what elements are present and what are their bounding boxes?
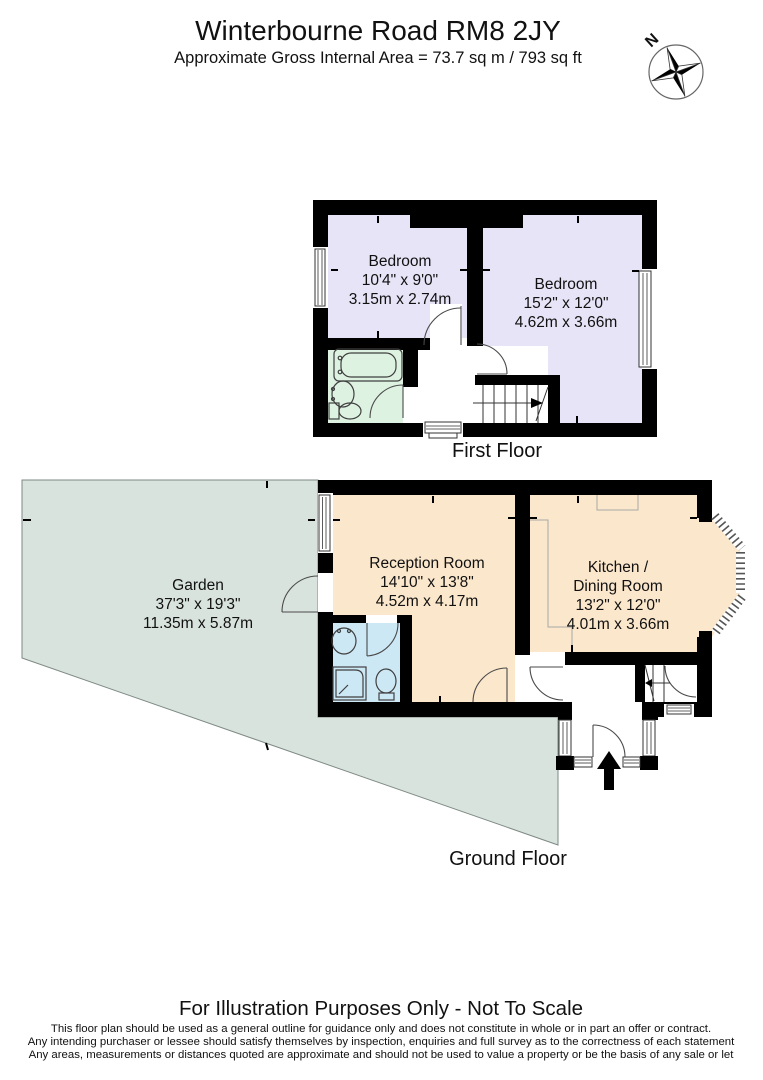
first-floor-plan: Bedroom 10'4" x 9'0" 3.15m x 2.74m Bedro… [313, 200, 657, 462]
footer-heading: For Illustration Purposes Only - Not To … [179, 997, 583, 1020]
bedroom2-name: Bedroom [535, 276, 598, 293]
compass-icon: N [642, 31, 709, 106]
bedroom1-window-icon [315, 249, 325, 306]
ground-floor-plan: Garden 37'3" x 19'3" 11.35m x 5.87m Rece… [22, 480, 742, 870]
stairs-window-icon [667, 705, 691, 714]
threshold-right-icon [623, 757, 640, 767]
threshold-left-icon [574, 757, 592, 767]
kitchen-name-line1: Kitchen / [588, 559, 649, 576]
footer-disclaimer-line3: Any areas, measurements or distances quo… [29, 1049, 735, 1061]
entrance-arrow-icon [597, 751, 621, 790]
bedroom2-dims-metric: 4.62m x 3.66m [515, 314, 618, 331]
ground-floor-stairs [645, 665, 670, 702]
kitchen-dims-imperial: 13'2" x 12'0" [575, 597, 660, 614]
kitchen-hall-door [530, 667, 563, 700]
bedroom1-door-swing-area [430, 304, 462, 346]
reception-dims-metric: 4.52m x 4.17m [376, 593, 479, 610]
header: Winterbourne Road RM8 2JY Approximate Gr… [174, 15, 709, 105]
garden-dims-metric: 11.35m x 5.87m [143, 615, 253, 632]
bedroom2-dims-imperial: 15'2" x 12'0" [523, 295, 608, 312]
page-subtitle: Approximate Gross Internal Area = 73.7 s… [174, 49, 582, 67]
page-title: Winterbourne Road RM8 2JY [195, 15, 561, 46]
landing-window-icon [425, 422, 461, 433]
floorplan-page: Winterbourne Road RM8 2JY Approximate Gr… [0, 0, 763, 1080]
porch-window-right-icon [643, 720, 655, 756]
bedroom2-window-icon [639, 271, 651, 367]
first-floor-label: First Floor [452, 440, 542, 462]
bay-opening-floor [697, 518, 712, 637]
reception-dims-imperial: 14'10" x 13'8" [380, 574, 474, 591]
bedroom1-dims-metric: 3.15m x 2.74m [349, 291, 452, 308]
garden-name: Garden [172, 577, 224, 594]
porch-window-left-icon [559, 720, 571, 756]
bedroom1-name: Bedroom [369, 253, 432, 270]
compass-north-label: N [642, 31, 662, 51]
footer-disclaimer-line2: Any intending purchaser or lessee should… [28, 1036, 735, 1048]
stairs-door [665, 666, 696, 697]
kitchen-name-line2: Dining Room [573, 578, 663, 595]
footer: For Illustration Purposes Only - Not To … [28, 997, 735, 1061]
ground-floor-label: Ground Floor [449, 848, 567, 870]
footer-disclaimer-line1: This floor plan should be used as a gene… [51, 1023, 711, 1035]
kitchen-dims-metric: 4.01m x 3.66m [567, 616, 670, 633]
reception-window-icon [319, 495, 330, 551]
bedroom1-dims-imperial: 10'4" x 9'0" [362, 272, 438, 289]
reception-name: Reception Room [369, 555, 484, 572]
landing-window-sill [429, 433, 457, 438]
garden-dims-imperial: 37'3" x 19'3" [155, 596, 240, 613]
floorplan-canvas: Winterbourne Road RM8 2JY Approximate Gr… [0, 0, 763, 1080]
